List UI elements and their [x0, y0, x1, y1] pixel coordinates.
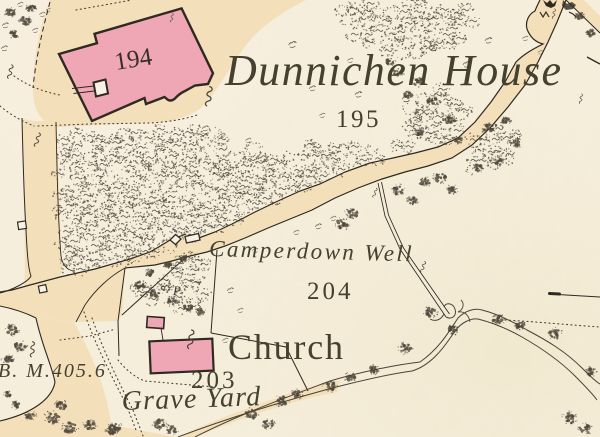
svg-text:Church: Church: [228, 327, 345, 367]
svg-text:Dunnichen House: Dunnichen House: [224, 46, 563, 95]
svg-text:195: 195: [336, 106, 381, 133]
svg-text:Grave Yard: Grave Yard: [121, 381, 262, 417]
svg-text:P: P: [172, 283, 181, 298]
svg-text:B. M.405.6: B. M.405.6: [0, 360, 107, 382]
svg-text:204: 204: [307, 278, 354, 305]
